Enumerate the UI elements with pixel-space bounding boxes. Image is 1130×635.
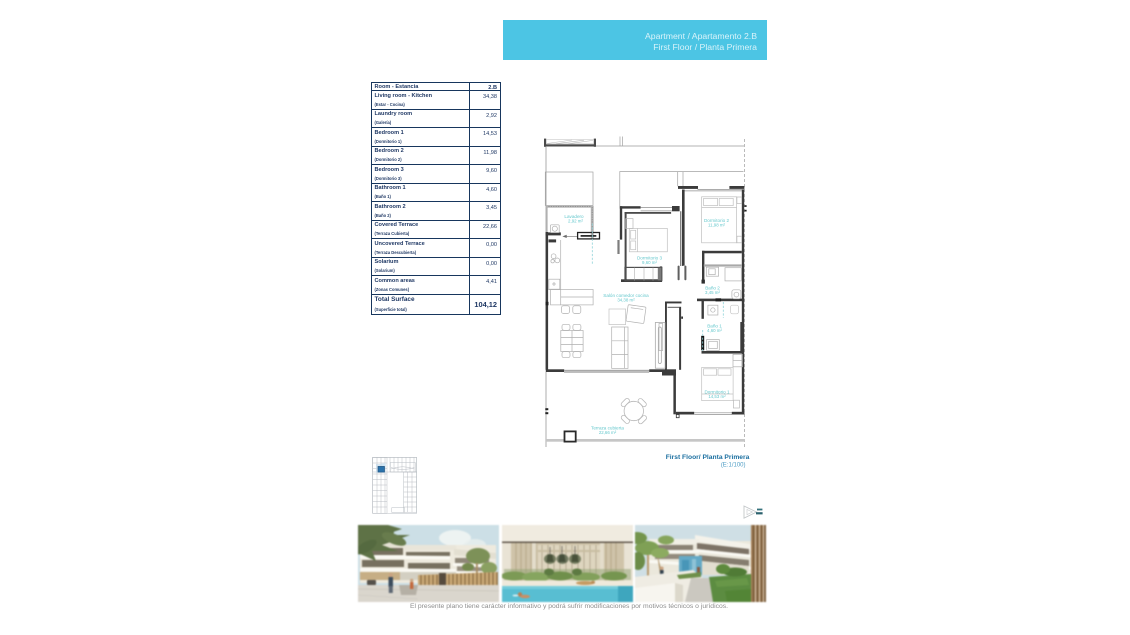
- svg-text:34,38 m²: 34,38 m²: [617, 298, 635, 303]
- svg-text:First Floor/ Planta Primera: First Floor/ Planta Primera: [666, 454, 750, 461]
- svg-text:11,98 m²: 11,98 m²: [708, 223, 726, 228]
- svg-text:(E:1/100): (E:1/100): [721, 463, 746, 469]
- svg-text:14,53 m²: 14,53 m²: [708, 394, 726, 399]
- svg-text:9,60 m²: 9,60 m²: [642, 260, 657, 265]
- svg-text:22,66 m²: 22,66 m²: [599, 430, 617, 435]
- svg-text:2,92 m²: 2,92 m²: [568, 218, 583, 223]
- svg-text:3,45 m²: 3,45 m²: [705, 290, 720, 295]
- svg-text:4,60 m²: 4,60 m²: [707, 328, 722, 333]
